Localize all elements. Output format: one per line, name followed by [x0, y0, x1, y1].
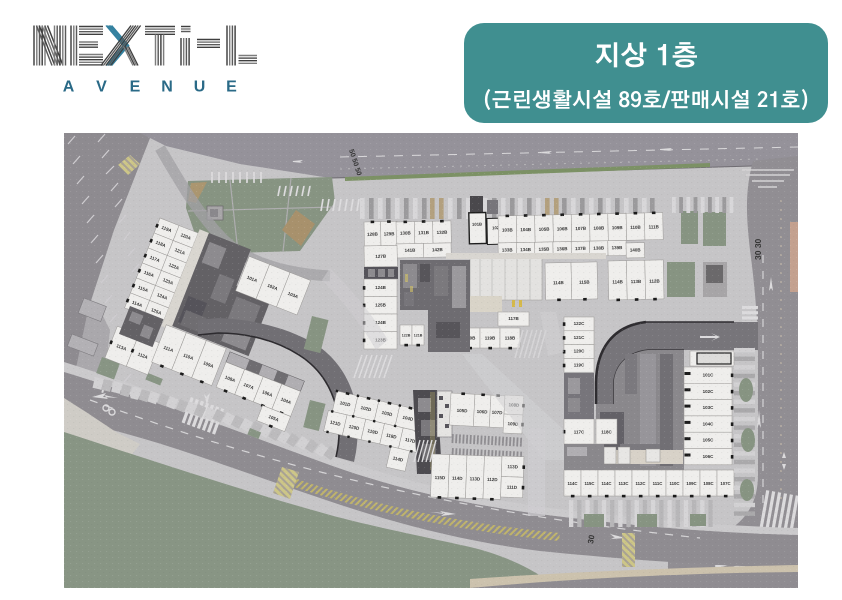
- svg-text:V: V: [96, 79, 107, 96]
- svg-text:N: N: [161, 79, 173, 96]
- svg-text:A: A: [63, 79, 75, 96]
- svg-text:E: E: [130, 79, 141, 96]
- svg-text:E: E: [226, 79, 237, 96]
- svg-text:U: U: [194, 79, 206, 96]
